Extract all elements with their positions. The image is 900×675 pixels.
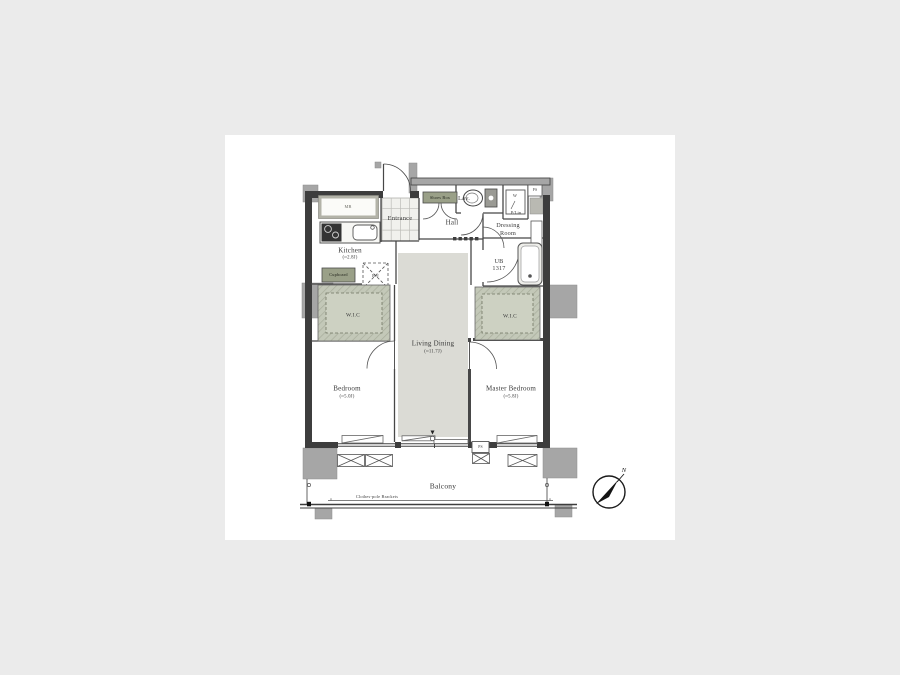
label-bedroom: Bedroom xyxy=(333,386,360,393)
label-living-dining: Living Dining xyxy=(412,341,454,348)
label-dressing-room-1: Dressing xyxy=(496,223,520,229)
sink-icon xyxy=(353,225,377,240)
label-washer: W xyxy=(513,194,517,198)
label-kitchen-size: (≈2.8J) xyxy=(342,257,357,262)
balcony-hatch-boxes xyxy=(338,454,538,467)
label-dressing-room-2: Room xyxy=(500,230,516,236)
label-ub: UB xyxy=(495,258,504,264)
label-ref: Ref xyxy=(372,274,379,278)
label-lav: Lav. xyxy=(458,196,470,203)
label-balcony: Balcony xyxy=(430,482,456,490)
label-shoes-box: Shoes Box xyxy=(430,195,450,199)
label-ps-bottom: PS xyxy=(478,446,483,450)
bathtub-icon xyxy=(518,243,542,285)
label-living-dining-size: (≈11.7J) xyxy=(424,351,442,356)
label-p-lin: P/Lin xyxy=(511,210,522,214)
label-cupboard: Cupboard xyxy=(329,273,348,277)
label-wic-left: W.I.C xyxy=(346,313,360,319)
label-compass-north: N xyxy=(622,468,627,475)
label-bedroom-size: (≈5.0J) xyxy=(339,396,354,401)
kitchen-fixtures xyxy=(320,222,380,243)
label-master-bedroom: Master Bedroom xyxy=(486,386,536,393)
label-ub-size: 1317 xyxy=(492,266,505,272)
label-entrance: Entrance xyxy=(388,216,413,223)
entrance-door xyxy=(384,164,411,191)
master-side-wall xyxy=(468,369,471,442)
floorplan-sheet: MB Entrance Shoes Box Lav. W P/Lin PS Ha… xyxy=(225,135,675,540)
label-meter-box: MB xyxy=(344,205,351,209)
wall-stub xyxy=(468,338,471,342)
label-master-bedroom-size: (≈5.8J) xyxy=(503,396,518,401)
compass-icon xyxy=(593,474,625,508)
stove-icon xyxy=(322,224,342,242)
label-clothes-pole-brackets: Clothes-pole Brackets xyxy=(356,494,398,498)
label-hall: Hall xyxy=(446,220,459,227)
label-wic-right: W.I.C xyxy=(503,314,517,320)
label-kitchen: Kitchen xyxy=(338,248,362,255)
page-background: MB Entrance Shoes Box Lav. W P/Lin PS Ha… xyxy=(0,0,900,675)
label-ps-top: PS xyxy=(533,189,538,193)
top-wall-band xyxy=(411,178,550,185)
